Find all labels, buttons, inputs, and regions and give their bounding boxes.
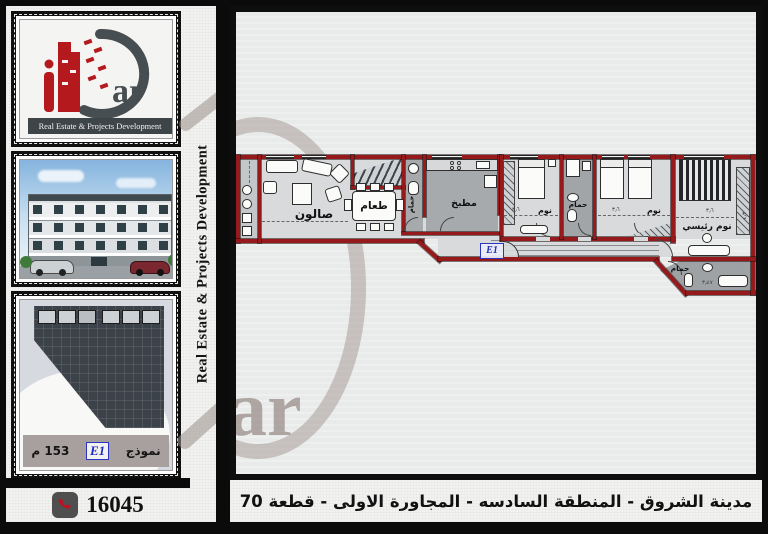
dar-logo-icon: ar Real Estate & Projects Development — [20, 20, 173, 139]
chair — [396, 199, 404, 211]
room-label-bedroom2: نوم — [640, 207, 668, 215]
model-caption: نموذج E1 153 م — [23, 435, 169, 467]
divider-bar — [216, 0, 230, 534]
footer-address-bar: مدينة الشروق - المنطقة السادسه - المجاور… — [230, 480, 762, 522]
logo-building-icon — [44, 39, 108, 112]
wall-balcony — [258, 155, 261, 243]
dimension-text: ٣٫٦ — [612, 208, 620, 214]
logo-tagline: Real Estate & Projects Development — [39, 122, 162, 131]
door-gap — [634, 237, 648, 241]
bathtub — [718, 275, 748, 287]
dimension-line — [504, 215, 558, 216]
building-render — [28, 194, 172, 270]
main-panel: ar — [230, 6, 762, 480]
sink — [408, 163, 419, 174]
window — [266, 155, 294, 159]
vertical-banner-text: Real Estate & Projects Development — [195, 145, 212, 384]
building-photo-box — [11, 151, 181, 287]
bed — [628, 159, 652, 199]
watermark-text: ar — [230, 364, 302, 454]
floor-plan: E1 صالون طعام — [236, 153, 757, 303]
room-label-masterbath: حمام — [666, 265, 694, 273]
footer-phone-area: 16045 — [6, 488, 190, 522]
dimension-line — [676, 217, 734, 218]
stove-burner — [457, 161, 461, 165]
planter — [242, 213, 252, 223]
phone-number: 16045 — [86, 492, 144, 518]
brochure-page: ar Real Estate & Projects Development — [0, 0, 768, 534]
toilet — [684, 273, 693, 287]
wall — [560, 155, 563, 239]
chair — [384, 223, 394, 231]
wall — [402, 232, 501, 235]
sofa — [266, 160, 298, 173]
stove-burner — [450, 166, 454, 170]
wall — [751, 155, 755, 295]
model-code-badge: E1 — [86, 442, 109, 460]
logo-box: ar Real Estate & Projects Development — [11, 11, 181, 147]
dimension-text: ٣٫٦ — [512, 208, 520, 214]
dimension-line — [262, 221, 348, 222]
planter — [242, 199, 252, 209]
dimension-line — [249, 161, 250, 183]
bench — [520, 225, 548, 234]
bush — [168, 254, 173, 266]
chair — [370, 183, 380, 191]
armchair — [263, 181, 277, 194]
dining-table: طعام — [352, 191, 396, 221]
wall — [672, 257, 755, 261]
bed — [600, 159, 624, 199]
model-area: 153 م — [31, 444, 69, 458]
chair — [356, 183, 366, 191]
dimension-text: ٣٫٦ — [706, 209, 714, 215]
toilet — [567, 209, 577, 222]
dresser — [688, 245, 730, 256]
wall — [438, 257, 659, 261]
wall — [236, 239, 424, 243]
bed — [518, 159, 545, 199]
wall-stairs — [351, 155, 354, 189]
planter — [242, 185, 252, 195]
water-heater — [582, 161, 591, 171]
dimension-text: ٤٫٣ — [743, 212, 749, 220]
stove-burner — [457, 166, 461, 170]
chair — [370, 223, 380, 231]
sink — [702, 263, 713, 272]
door-gap — [536, 237, 550, 241]
wall — [593, 155, 596, 239]
model-word: نموذج — [126, 444, 161, 458]
kitchen-sink — [476, 161, 490, 169]
chair — [356, 223, 366, 231]
stove-burner — [450, 161, 454, 165]
wall — [402, 155, 405, 233]
stool — [702, 233, 712, 243]
room-label-master: نوم رئيسي — [674, 223, 740, 232]
room-label-bath2: حمام — [564, 201, 592, 209]
unit-entrance-badge: E1 — [480, 243, 504, 259]
phone-icon — [52, 492, 78, 518]
coffee-table — [292, 183, 312, 205]
siteplan-box: نموذج E1 153 م — [11, 291, 181, 479]
footer-separator — [6, 478, 190, 488]
car-left — [30, 260, 74, 274]
nightstand — [548, 159, 556, 167]
room-label-kitchen: مطبخ — [444, 199, 484, 209]
planter — [242, 226, 252, 236]
master-bed — [679, 159, 731, 201]
wall — [236, 155, 240, 243]
fridge — [484, 175, 497, 188]
room-label-bedroom1: نوم — [532, 207, 558, 215]
room-label-dining: طعام — [360, 201, 387, 212]
cloud-shape — [116, 178, 156, 188]
chair — [384, 183, 394, 191]
room-label-salon: صالون — [284, 208, 344, 220]
building-photo — [19, 159, 173, 279]
dimension-line — [598, 215, 670, 216]
sidebar: ar Real Estate & Projects Development — [6, 6, 190, 522]
shower — [566, 159, 580, 177]
wall — [686, 291, 755, 295]
vertical-banner-strip: Real Estate & Projects Development — [190, 6, 216, 522]
logo-latin-text: ar — [112, 73, 144, 110]
door-gap — [578, 237, 591, 241]
bush — [20, 256, 32, 268]
cloud-shape — [38, 170, 84, 182]
dimension-text: ٣٫٤٧ — [702, 281, 713, 287]
car-right — [130, 261, 170, 274]
chair — [344, 199, 352, 211]
room-label-bath1: حمام — [409, 191, 416, 219]
address-text: مدينة الشروق - المنطقة السادسه - المجاور… — [240, 492, 752, 511]
